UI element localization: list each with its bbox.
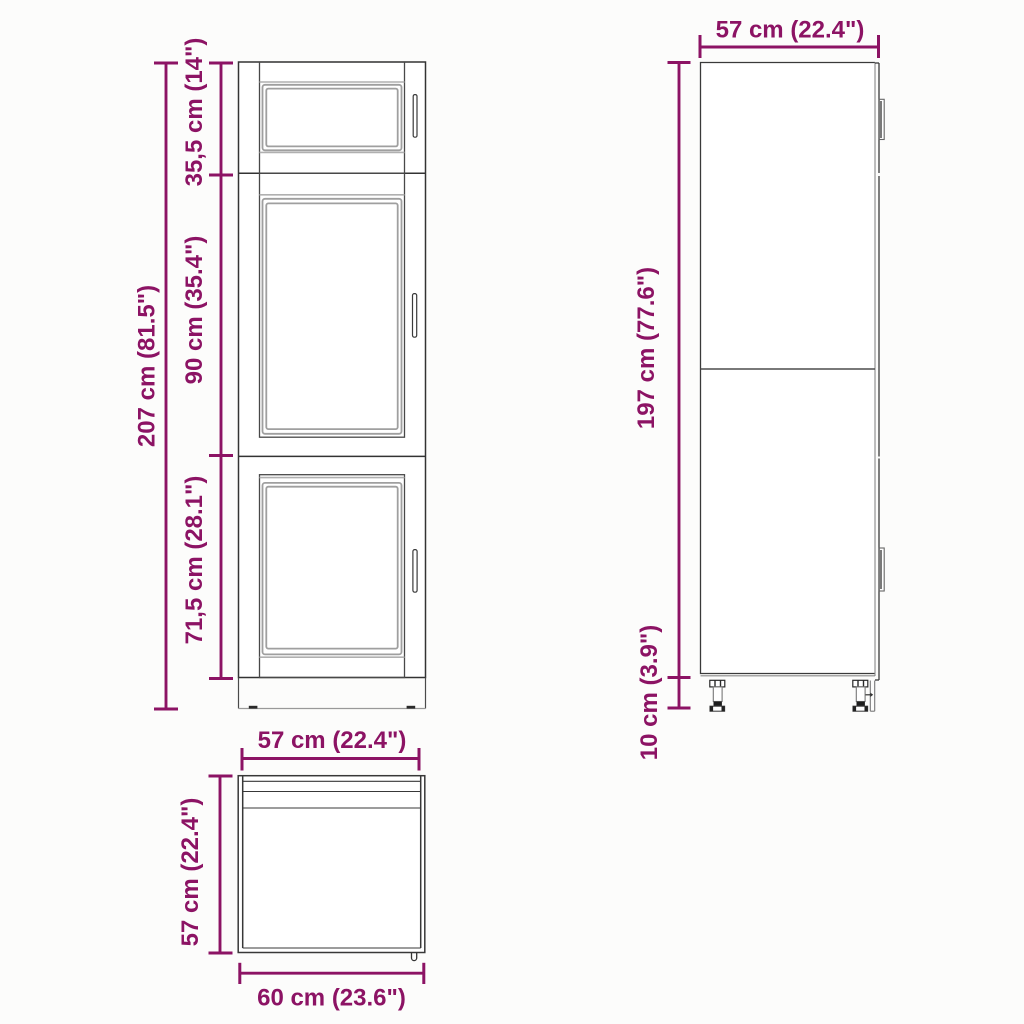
svg-text:10 cm (3.9"): 10 cm (3.9")	[636, 625, 663, 760]
svg-text:71,5 cm (28.1"): 71,5 cm (28.1")	[181, 476, 208, 645]
svg-text:57 cm (22.4"): 57 cm (22.4")	[716, 17, 865, 44]
svg-text:60 cm (23.6"): 60 cm (23.6")	[257, 985, 406, 1012]
svg-text:207 cm (81.5"): 207 cm (81.5")	[134, 285, 161, 447]
svg-text:197 cm (77.6"): 197 cm (77.6")	[633, 267, 660, 429]
svg-text:90 cm (35.4"): 90 cm (35.4")	[181, 236, 208, 385]
svg-text:57 cm (22.4"): 57 cm (22.4")	[258, 727, 407, 754]
svg-text:57 cm (22.4"): 57 cm (22.4")	[177, 798, 204, 947]
svg-text:35,5 cm (14"): 35,5 cm (14")	[181, 38, 208, 187]
